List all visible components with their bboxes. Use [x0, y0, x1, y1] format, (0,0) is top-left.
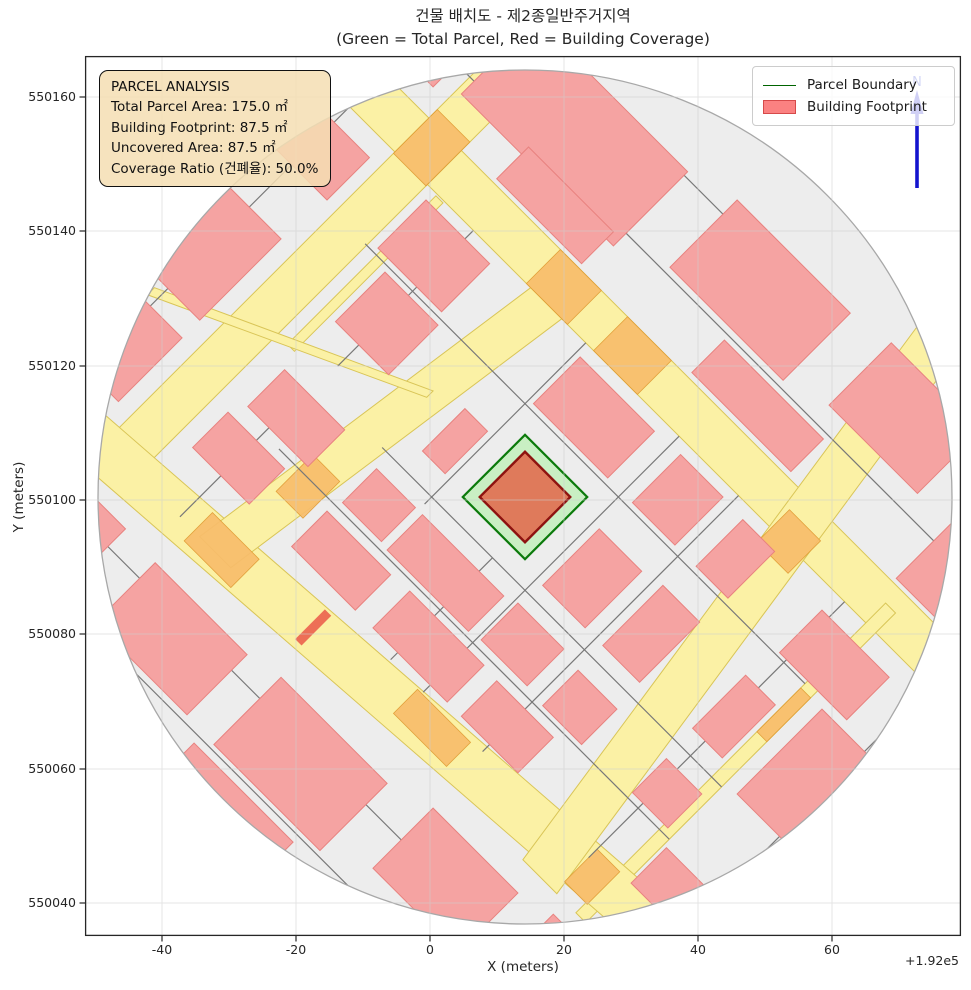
- x-tick-label: 0: [390, 942, 470, 957]
- x-axis-label: X (meters): [85, 959, 961, 975]
- legend-item-building-footprint: Building Footprint: [763, 96, 944, 118]
- figure: 건물 배치도 - 제2종일반주거지역 (Green = Total Parcel…: [0, 0, 971, 990]
- title-line-2: (Green = Total Parcel, Red = Building Co…: [85, 28, 961, 51]
- legend-label: Parcel Boundary: [807, 77, 917, 93]
- plot-title: 건물 배치도 - 제2종일반주거지역 (Green = Total Parcel…: [85, 5, 961, 51]
- y-tick-label: 550160: [2, 89, 76, 104]
- title-line-1: 건물 배치도 - 제2종일반주거지역: [85, 5, 961, 28]
- legend-label: Building Footprint: [807, 99, 927, 115]
- y-tick-label: 550060: [2, 761, 76, 776]
- parcel-analysis-info-box: PARCEL ANALYSISTotal Parcel Area: 175.0 …: [99, 70, 331, 187]
- y-tick-label: 550140: [2, 223, 76, 238]
- y-tick-label: 550040: [2, 895, 76, 910]
- x-axis-offset-text: +1.92e5: [905, 953, 959, 968]
- y-tick-label: 550120: [2, 358, 76, 373]
- x-tick-label: 20: [524, 942, 604, 957]
- info-box-line: Coverage Ratio (건폐율): 50.0%: [111, 159, 319, 179]
- x-tick-label: -20: [256, 942, 336, 957]
- y-axis-label: Y (meters): [11, 442, 27, 552]
- parcel-boundary-line-swatch: [763, 85, 796, 86]
- y-tick-label: 550080: [2, 626, 76, 641]
- plot-area: N: [85, 56, 961, 936]
- info-box-line: PARCEL ANALYSIS: [111, 77, 319, 97]
- x-tick-label: -40: [122, 942, 202, 957]
- x-tick-label: 60: [792, 942, 872, 957]
- legend-item-parcel-boundary: Parcel Boundary: [763, 74, 944, 96]
- building-footprint-patch-swatch: [763, 100, 796, 114]
- info-box-line: Uncovered Area: 87.5 ㎡: [111, 138, 319, 158]
- info-box-line: Total Parcel Area: 175.0 ㎡: [111, 97, 319, 117]
- info-box-line: Building Footprint: 87.5 ㎡: [111, 118, 319, 138]
- x-tick-label: 40: [658, 942, 738, 957]
- legend: Parcel Boundary Building Footprint: [752, 66, 955, 126]
